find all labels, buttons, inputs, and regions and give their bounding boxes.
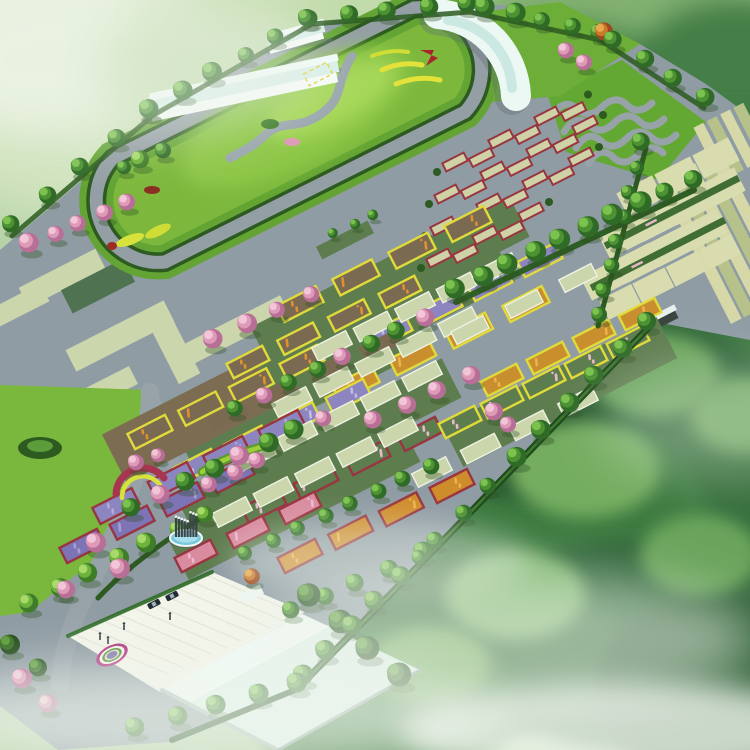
rendering-stage: Aerial perspective rendering of a landsc… xyxy=(0,0,750,750)
site-plan-rendering xyxy=(0,0,750,750)
